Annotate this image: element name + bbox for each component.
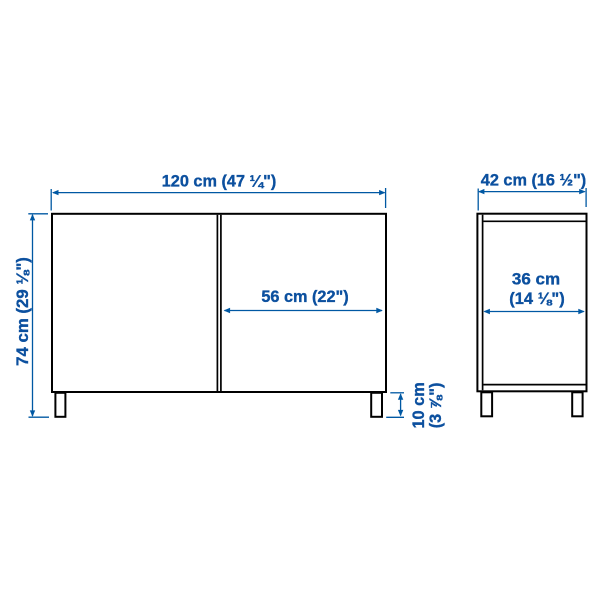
svg-text:(14 ⅛"): (14 ⅛") [509, 290, 565, 308]
svg-text:10 cm: 10 cm [410, 382, 428, 428]
svg-text:(3 ⅞"): (3 ⅞") [427, 383, 445, 429]
svg-text:120 cm (47 ¼"): 120 cm (47 ¼") [162, 172, 277, 190]
svg-text:56 cm (22"): 56 cm (22") [261, 288, 348, 306]
svg-text:42 cm (16 ½"): 42 cm (16 ½") [481, 172, 586, 190]
svg-text:74 cm (29 ⅛"): 74 cm (29 ⅛") [13, 257, 32, 366]
svg-text:36 cm: 36 cm [512, 269, 560, 288]
